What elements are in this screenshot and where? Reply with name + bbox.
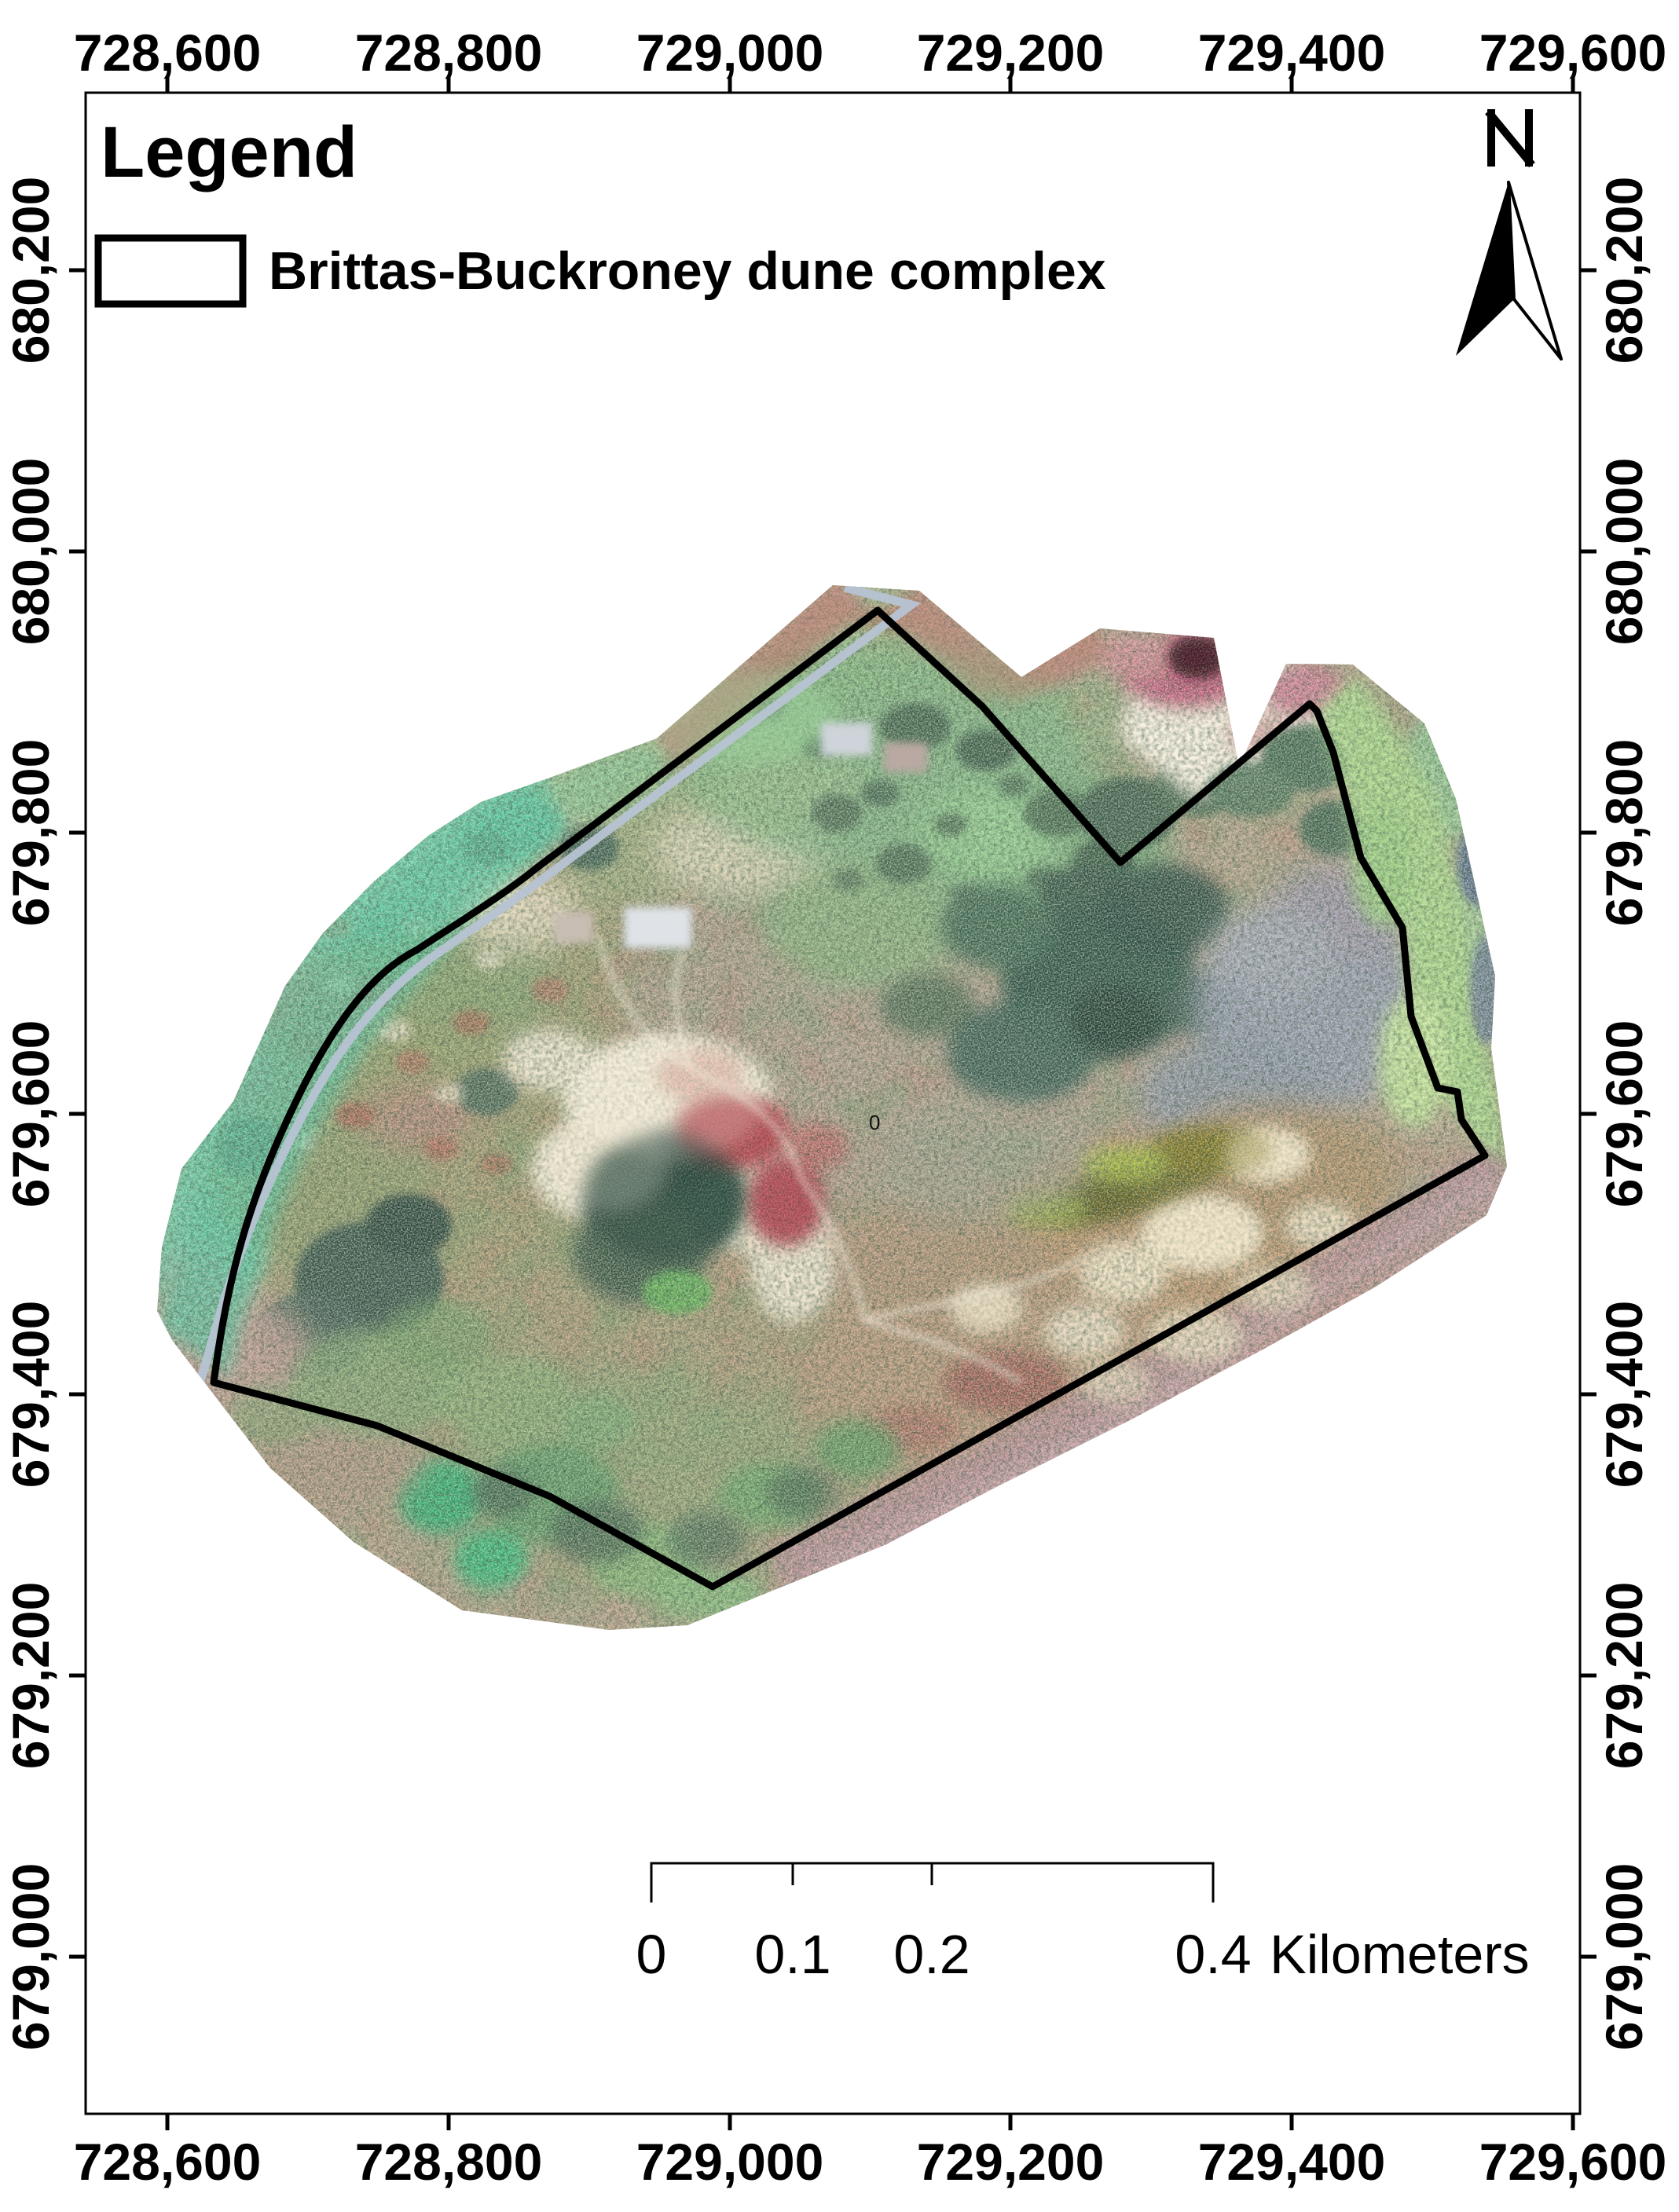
svg-text:679,400: 679,400: [1595, 1301, 1653, 1489]
svg-text:680,000: 680,000: [2, 458, 60, 646]
svg-text:679,600: 679,600: [1595, 1020, 1653, 1208]
svg-text:680,200: 680,200: [2, 177, 60, 364]
svg-text:680,000: 680,000: [1595, 458, 1653, 646]
svg-text:0: 0: [636, 1924, 667, 1985]
svg-text:679,800: 679,800: [1595, 739, 1653, 927]
svg-text:0.4: 0.4: [1175, 1924, 1251, 1985]
svg-text:728,600: 728,600: [74, 2133, 262, 2191]
svg-text:679,800: 679,800: [2, 739, 60, 927]
svg-text:729,000: 729,000: [636, 2133, 824, 2191]
svg-text:728,800: 728,800: [355, 2133, 543, 2191]
svg-text:728,800: 728,800: [355, 24, 543, 82]
svg-text:729,600: 729,600: [1479, 2133, 1667, 2191]
svg-text:679,400: 679,400: [2, 1301, 60, 1489]
svg-text:0.1: 0.1: [754, 1924, 830, 1985]
svg-text:0: 0: [869, 1111, 880, 1134]
svg-text:679,200: 679,200: [1595, 1582, 1653, 1770]
svg-text:679,000: 679,000: [2, 1863, 60, 2051]
svg-text:679,000: 679,000: [1595, 1863, 1653, 2051]
svg-text:729,200: 729,200: [917, 24, 1105, 82]
svg-text:729,000: 729,000: [636, 24, 824, 82]
svg-text:679,600: 679,600: [2, 1020, 60, 1208]
svg-text:729,400: 729,400: [1198, 2133, 1386, 2191]
svg-text:679,200: 679,200: [2, 1582, 60, 1770]
svg-text:728,600: 728,600: [74, 24, 262, 82]
svg-text:Brittas-Buckroney dune complex: Brittas-Buckroney dune complex: [269, 241, 1106, 301]
svg-text:680,200: 680,200: [1595, 177, 1653, 364]
svg-text:729,400: 729,400: [1198, 24, 1386, 82]
svg-text:Kilometers: Kilometers: [1270, 1924, 1530, 1985]
svg-text:729,600: 729,600: [1479, 24, 1667, 82]
svg-text:Legend: Legend: [101, 112, 357, 192]
svg-text:0.2: 0.2: [893, 1924, 970, 1985]
svg-text:729,200: 729,200: [917, 2133, 1105, 2191]
